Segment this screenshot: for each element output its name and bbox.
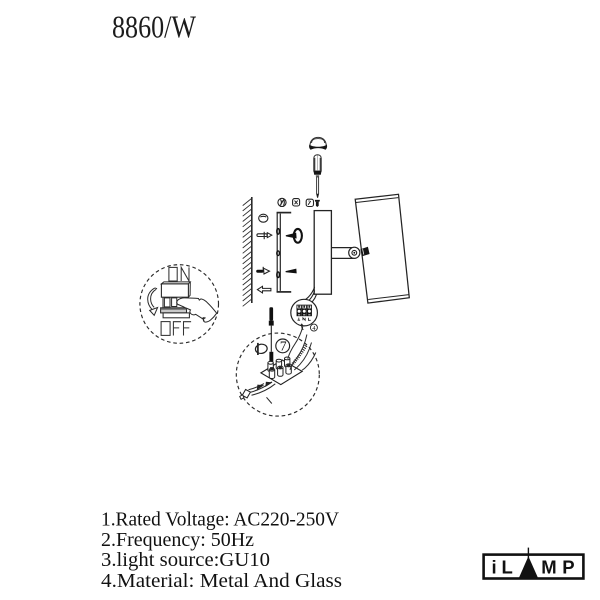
svg-text:8860/W: 8860/W (112, 8, 197, 44)
svg-text:4: 4 (312, 325, 315, 332)
svg-text:i: i (492, 556, 497, 577)
svg-text:3.light source:GU10: 3.light source:GU10 (101, 550, 270, 571)
svg-text:2.Frequency: 50Hz: 2.Frequency: 50Hz (101, 530, 254, 551)
svg-text:1.Rated Voltage: AC220-250V: 1.Rated Voltage: AC220-250V (101, 510, 339, 531)
svg-text:P: P (562, 556, 574, 577)
svg-text:7: 7 (280, 339, 287, 354)
svg-text:4.Material: Metal And Glass: 4.Material: Metal And Glass (101, 571, 342, 592)
svg-text:M: M (541, 556, 556, 577)
svg-text:L: L (502, 556, 513, 577)
